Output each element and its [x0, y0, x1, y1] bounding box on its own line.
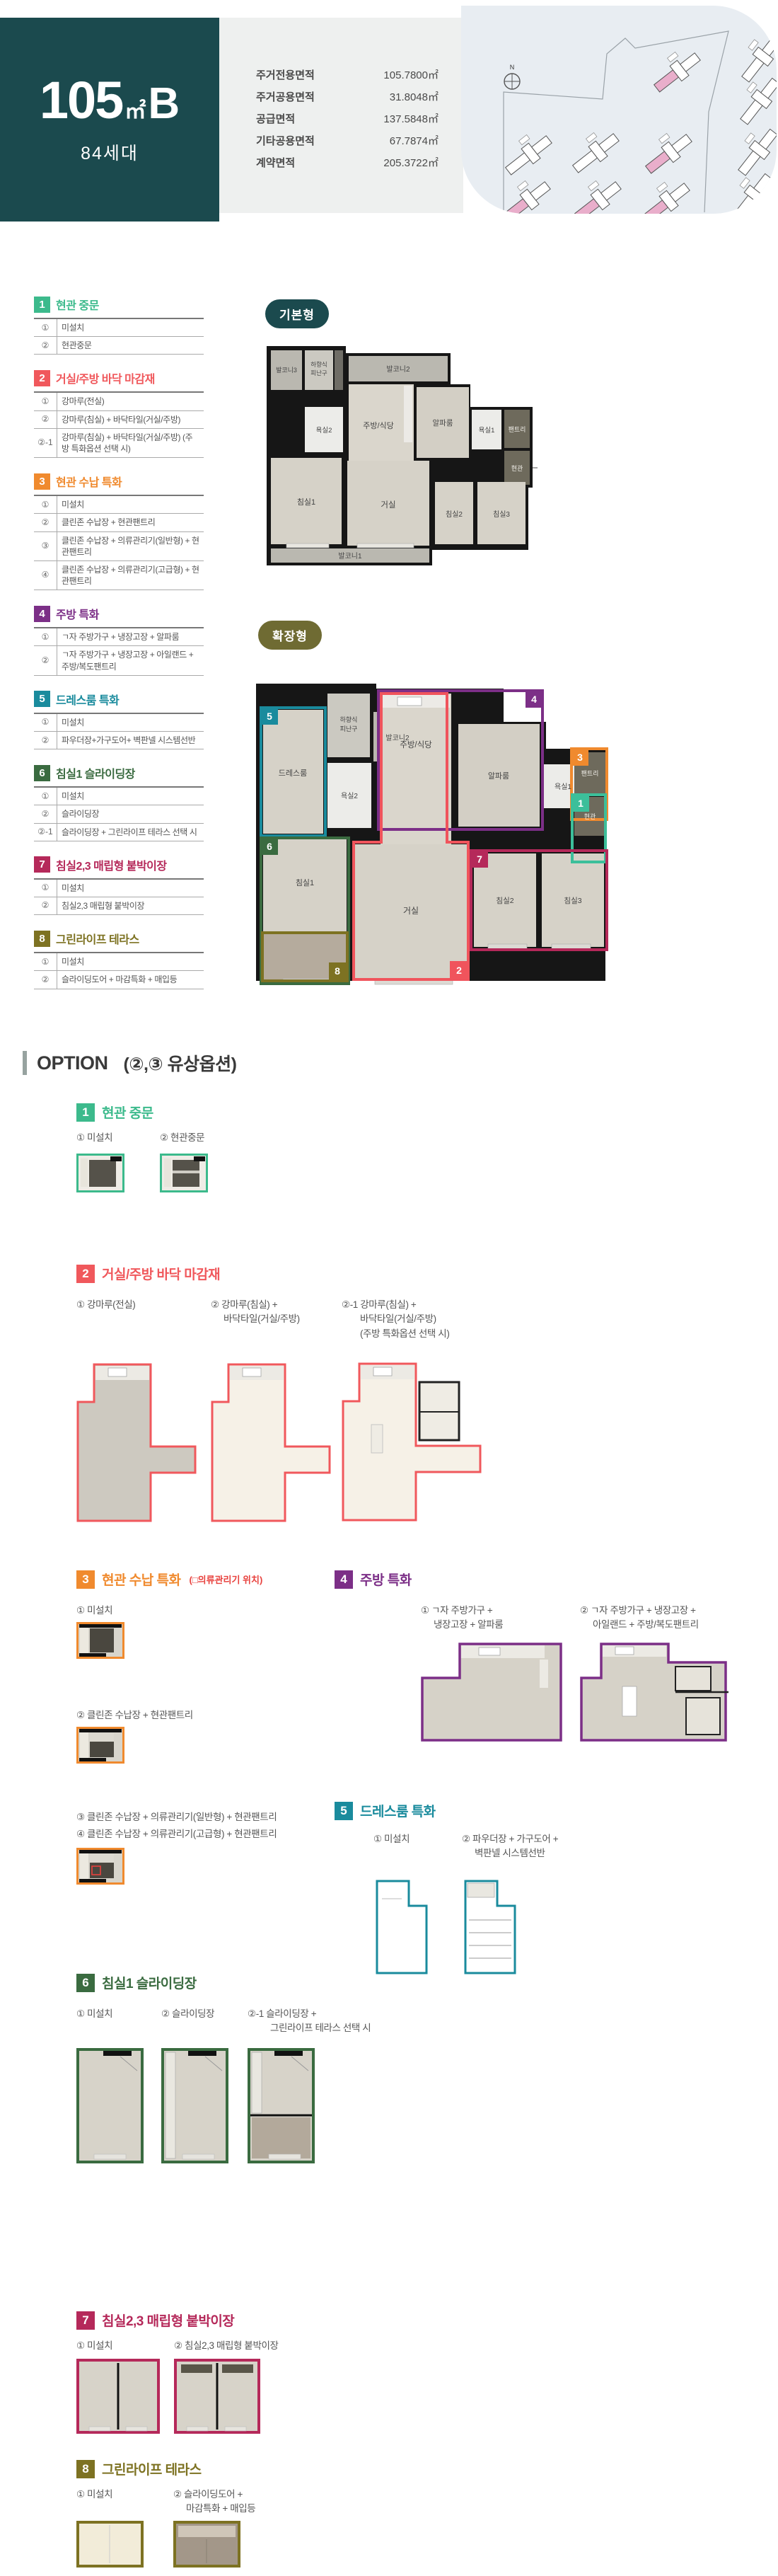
unit-size-number: 105	[40, 74, 122, 127]
option-row: ②파우더장+가구도어+ 벽판넬 시스템선반	[34, 732, 204, 749]
section-title: 그린라이프 테라스	[56, 930, 139, 947]
option-item: ① ㄱ자 주방가구 +냉장고장 + 알파룸	[421, 1604, 562, 1745]
section-title: 침실1 슬라이딩장	[102, 1973, 197, 1992]
option-text: ㄱ자 주방가구 + 냉장고장 + 알파룸	[57, 628, 204, 645]
option-text: 파우더장+가구도어+ 벽판넬 시스템선반	[57, 732, 204, 749]
option-item: ① 미설치	[76, 2339, 160, 2437]
option-mark: ①	[34, 953, 57, 970]
overlay-chip-6-label: 6	[267, 841, 272, 852]
option-text: ㄱ자 주방가구 + 냉장고장 + 아일랜드 + 주방/복도팬트리	[57, 646, 204, 674]
option-item: ① 미설치	[373, 1832, 430, 1980]
room-label-bed2: 침실2	[496, 897, 513, 905]
option-mark: ②	[34, 411, 57, 428]
sidebar-section-greenlife-terrace: 8 그린라이프 테라스 ①미설치 ②슬라이딩도어 + 마감특화 + 매입등	[34, 930, 204, 989]
option-item: ① 강마루(전실)	[76, 1298, 197, 1526]
option-row: ②슬라이딩장	[34, 805, 204, 823]
area-row: 기타공용면적 67.7874㎡	[256, 130, 439, 152]
section-title: 그린라이프 테라스	[102, 2459, 202, 2478]
heading-accent-bar	[23, 1051, 27, 1075]
room-label-kitchen: 주방/식당	[363, 421, 394, 430]
room-label-bath1: 욕실1	[555, 783, 571, 791]
extended-plan-badge: 확장형	[258, 621, 322, 650]
option-item: ② 강마루(침실) +바닥타일(거실/주방)	[211, 1298, 331, 1526]
site-map: N	[461, 6, 777, 214]
option-item: ① 미설치	[76, 1604, 124, 1662]
window-sill	[286, 544, 329, 548]
kitchen-sink	[397, 697, 422, 706]
unit-type-card: 105 ㎡ B 84세대	[0, 18, 219, 222]
option-row: ②ㄱ자 주방가구 + 냉장고장 + 아일랜드 + 주방/복도팬트리	[34, 646, 204, 675]
option-mark: ②	[34, 732, 57, 749]
sidebar-section-bed1-sliding: 6 침실1 슬라이딩장 ①미설치 ②슬라이딩장 ②-1슬라이딩장 + 그린라이프…	[34, 764, 204, 841]
room-label-bed3: 침실3	[493, 510, 510, 519]
option-block-1: 1 현관 중문 ① 미설치 ② 현관중문	[76, 1103, 359, 1196]
sidebar-section-entrance-door: 1 현관 중문 ①미설치 ②현관중문	[34, 296, 204, 355]
section-number-badge: 6	[76, 1974, 95, 1992]
option-row: ④클린존 수납장 + 의류관리기(고급형) + 현관팬트리	[34, 561, 204, 590]
building-icon	[728, 121, 777, 178]
option-block-8: 8 그린라이프 테라스 ① 미설치 ② 슬라이딩도어 +마감특화 + 매입등	[76, 2459, 373, 2571]
area-value: 205.3722㎡	[383, 152, 439, 174]
option-item: ③ 클린존 수납장 + 의류관리기(일반형) + 현관팬트리④ 클린존 수납장 …	[76, 1810, 277, 1888]
area-label: 주거공용면적	[256, 86, 315, 108]
building-icon	[732, 28, 777, 85]
floorplan-brochure-page: 105 ㎡ B 84세대 주거전용면적 105.7800㎡ 주거공용면적 31.…	[0, 0, 778, 2576]
option-text: 현관중문	[57, 337, 204, 354]
option-mark: ②	[34, 805, 57, 822]
section-note: (□의류관리기 위치)	[189, 1572, 262, 1586]
option-item: ② 파우더장 + 가구도어 +벽판넬 시스템선반	[462, 1832, 558, 1980]
room-label-bed2: 침실2	[446, 510, 463, 519]
option-text: 강마루(전실)	[57, 393, 204, 410]
area-value: 137.5848㎡	[383, 108, 439, 130]
option-diagram	[421, 1643, 562, 1742]
section-title: 거실/주방 바닥 마감재	[102, 1264, 220, 1283]
overlay-chip-5-label: 5	[267, 711, 272, 722]
option-row: ①미설치	[34, 714, 204, 732]
option-summary-sidebar: 1 현관 중문 ①미설치 ②현관중문 2 거실/주방 바닥 마감재 ①강마루(전…	[34, 296, 204, 1004]
kitchen-counter	[404, 386, 412, 442]
option-text: 슬라이딩도어 + 마감특화 + 매입등	[57, 971, 204, 988]
option-diagram	[76, 2048, 144, 2163]
option-thumb	[76, 1727, 124, 1764]
building-icon	[497, 172, 554, 214]
room-label-alpha: 알파룸	[433, 419, 453, 427]
option-diagram	[76, 1363, 197, 1522]
section-title: 침실1 슬라이딩장	[56, 764, 135, 781]
section-title: 현관 수납 특화	[102, 1570, 180, 1589]
north-compass-icon: N	[504, 64, 520, 89]
area-value: 105.7800㎡	[383, 64, 439, 86]
section-number-badge: 2	[76, 1265, 95, 1283]
option-block-2: 2 거실/주방 바닥 마감재 ① 강마루(전실) ② 강마루(침실) +바닥타일…	[76, 1264, 755, 1561]
option-item: ② 슬라이딩장	[161, 2007, 228, 2167]
section-title: 주방 특화	[56, 605, 99, 622]
section-number-badge: 7	[34, 856, 50, 873]
window-sill	[357, 544, 414, 548]
option-mark: ②	[34, 646, 57, 674]
option-diagram	[580, 1643, 728, 1742]
option-diagram	[174, 2359, 260, 2434]
room-label-entry: 현관	[511, 465, 523, 472]
option-section-heading: OPTION (②,③ 유상옵션)	[23, 1050, 236, 1076]
area-row: 주거공용면적 31.8048㎡	[256, 86, 439, 108]
option-mark: ①	[34, 714, 57, 731]
area-label: 공급면적	[256, 108, 295, 130]
section-number-badge: 5	[34, 691, 50, 707]
site-map-panel: N	[461, 6, 777, 214]
section-number-badge: 1	[34, 297, 50, 313]
section-number-badge: 5	[335, 1802, 353, 1820]
room-label-living: 거실	[403, 906, 419, 916]
option-mark: ②	[34, 971, 57, 988]
option-item: ②-1 슬라이딩장 +그린라이프 테라스 선택 시	[248, 2007, 371, 2167]
option-row: ①미설치	[34, 788, 204, 805]
option-row: ②클린존 수납장 + 현관팬트리	[34, 514, 204, 531]
option-mark: ②-1	[34, 429, 57, 457]
option-row: ②슬라이딩도어 + 마감특화 + 매입등	[34, 971, 204, 989]
option-row: ①미설치	[34, 953, 204, 971]
option-block-4: 4 주방 특화 ① ㄱ자 주방가구 +냉장고장 + 알파룸 ② ㄱ자 주방가구 …	[335, 1570, 745, 1782]
option-item: ② 클린존 수납장 + 현관팬트리	[76, 1708, 193, 1767]
option-thumb	[76, 1848, 124, 1885]
option-row: ②-1슬라이딩장 + 그린라이프 테라스 선택 시	[34, 824, 204, 841]
sidebar-section-entry-storage: 3 현관 수납 특화 ①미설치 ②클린존 수납장 + 현관팬트리 ③클린존 수납…	[34, 473, 204, 590]
area-info-panel: 주거전용면적 105.7800㎡ 주거공용면적 31.8048㎡ 공급면적 13…	[219, 18, 463, 213]
section-number-badge: 8	[34, 931, 50, 947]
option-mark: ②	[34, 337, 57, 354]
area-value: 67.7874㎡	[390, 130, 439, 152]
section-title: 현관 수납 특화	[56, 473, 122, 490]
area-row: 주거전용면적 105.7800㎡	[256, 64, 439, 86]
section-number-badge: 6	[34, 765, 50, 781]
overlay-chip-8-label: 8	[335, 965, 340, 977]
option-mark: ①	[34, 880, 57, 897]
option-text: 슬라이딩장 + 그린라이프 테라스 선택 시	[57, 824, 204, 841]
area-label: 계약면적	[256, 152, 295, 174]
option-text: 미설치	[57, 788, 204, 805]
building-icon	[498, 126, 555, 179]
room-label-bed1: 침실1	[297, 498, 315, 507]
area-row: 계약면적 205.3722㎡	[256, 152, 439, 174]
section-number-badge: 4	[335, 1570, 353, 1589]
section-title: 거실/주방 바닥 마감재	[56, 369, 155, 386]
sidebar-section-builtin-closet: 7 침실2,3 매립형 붙박이장 ①미설치 ②침실2,3 매립형 붙박이장	[34, 856, 204, 915]
room-label-balcony2: 발코니2	[386, 365, 410, 374]
option-mark: ①	[34, 628, 57, 645]
overlay-chip-2-label: 2	[456, 965, 462, 976]
option-row: ③클린존 수납장 + 의류관리기(일반형) + 현관팬트리	[34, 532, 204, 561]
building-icon	[565, 124, 622, 177]
option-thumb	[160, 1154, 208, 1192]
option-row: ①미설치	[34, 319, 204, 337]
overlay-chip-1-label: 1	[578, 798, 583, 809]
option-mark: ①	[34, 788, 57, 805]
option-row: ②강마루(침실) + 바닥타일(거실/주방)	[34, 411, 204, 429]
basic-floorplan: 발코니3 하향식 피난구 발코니2 주방/식당 욕실2 알파룸 욕실1 팬트리 …	[265, 342, 538, 568]
room-label-bath2: 욕실2	[316, 427, 332, 435]
option-mark: ③	[34, 532, 57, 560]
sidebar-section-floor-finish: 2 거실/주방 바닥 마감재 ①강마루(전실) ②강마루(침실) + 바닥타일(…	[34, 369, 204, 458]
area-label: 주거전용면적	[256, 64, 315, 86]
option-row: ①강마루(전실)	[34, 393, 204, 410]
option-mark: ④	[34, 561, 57, 590]
option-item: ② 슬라이딩도어 +마감특화 + 매입등	[173, 2488, 255, 2571]
option-block-7: 7 침실2,3 매립형 붙박이장 ① 미설치 ② 침실2,3 매립형 붙박이장	[76, 2311, 373, 2437]
area-value: 31.8048㎡	[390, 86, 439, 108]
option-item: ① 미설치	[76, 1131, 124, 1196]
option-diagram	[161, 2048, 228, 2163]
option-heading-text: OPTION	[37, 1052, 108, 1074]
room-label-dressroom: 드레스룸	[279, 769, 307, 778]
option-text: 침실2,3 매립형 붙박이장	[57, 897, 204, 914]
option-block-5: 5 드레스룸 특화 ① 미설치 ② 파우더장 + 가구도어 +벽판넬 시스템선반	[335, 1801, 617, 1999]
option-row: ①ㄱ자 주방가구 + 냉장고장 + 알파룸	[34, 628, 204, 646]
basic-plan-badge: 기본형	[265, 299, 329, 328]
building-icon	[636, 173, 693, 214]
extended-floorplan: 5 4 3 1 6 8 7 2 드레스룸 하향식 피난구 발코니2 주방/식당 …	[255, 678, 608, 989]
building-icon	[638, 125, 695, 178]
section-title: 주방 특화	[360, 1570, 412, 1589]
section-title: 침실2,3 매립형 붙박이장	[56, 856, 167, 873]
section-title: 드레스룸 특화	[56, 691, 119, 708]
option-diagram	[211, 1363, 331, 1522]
unit-type-letter: B	[148, 82, 180, 126]
section-title: 현관 중문	[102, 1103, 153, 1122]
option-diagram	[462, 1878, 518, 1977]
option-thumb	[76, 1622, 124, 1659]
room-label-pantry: 팬트리	[509, 426, 526, 433]
room-label-balcony3: 발코니3	[276, 367, 297, 374]
section-title: 침실2,3 매립형 붙박이장	[102, 2311, 234, 2330]
option-row: ②침실2,3 매립형 붙박이장	[34, 897, 204, 915]
room-label-pantry: 팬트리	[581, 770, 599, 777]
option-row: ①미설치	[34, 496, 204, 514]
option-item: ① 미설치	[76, 2488, 144, 2571]
option-block-3: 3 현관 수납 특화 (□의류관리기 위치) ① 미설치 ② 클린존 수납장 +…	[76, 1570, 373, 1895]
option-mark: ①	[34, 496, 57, 513]
option-text: 클린존 수납장 + 의류관리기(일반형) + 현관팬트리	[57, 532, 204, 560]
area-row: 공급면적 137.5848㎡	[256, 108, 439, 130]
option-diagram	[76, 2359, 160, 2434]
room-label-balcony1: 발코니1	[338, 552, 362, 560]
room-label-bed3: 침실3	[564, 897, 581, 905]
sidebar-section-dressroom: 5 드레스룸 특화 ①미설치 ②파우더장+가구도어+ 벽판넬 시스템선반	[34, 691, 204, 749]
room-shaft	[335, 350, 343, 390]
option-text: 미설치	[57, 880, 204, 897]
option-text: 강마루(침실) + 바닥타일(거실/주방)	[57, 411, 204, 428]
option-row: ②-1강마루(침실) + 바닥타일(거실/주방) (주방 특화옵션 선택 시)	[34, 429, 204, 458]
room-label-bath2: 욕실2	[341, 792, 358, 800]
room-label-alpha: 알파룸	[488, 771, 509, 781]
room-label-entry: 현관	[584, 813, 596, 820]
option-item: ① 미설치	[76, 2007, 144, 2167]
section-number-badge: 1	[76, 1103, 95, 1122]
section-number-badge: 2	[34, 370, 50, 386]
option-mark: ②	[34, 897, 57, 914]
section-title: 현관 중문	[56, 296, 99, 313]
section-number-badge: 3	[34, 473, 50, 490]
option-text: 미설치	[57, 319, 204, 336]
option-block-6: 6 침실1 슬라이딩장 ① 미설치 ② 슬라이딩장	[76, 1973, 416, 2207]
option-row: ②현관중문	[34, 337, 204, 355]
option-diagram	[373, 1878, 430, 1977]
section-number-badge: 7	[76, 2311, 95, 2330]
section-number-badge: 8	[76, 2460, 95, 2478]
option-text: 강마루(침실) + 바닥타일(거실/주방) (주방 특화옵션 선택 시)	[57, 429, 204, 457]
room-label-escape1: 하향식	[310, 361, 327, 368]
unit-size-unit: ㎡	[124, 101, 146, 122]
building-icon	[646, 43, 704, 96]
room-label-kitchen: 주방/식당	[400, 740, 432, 749]
section-number-badge: 3	[76, 1570, 95, 1589]
room-label-escape2: 피난구	[340, 725, 358, 732]
option-text: 미설치	[57, 714, 204, 731]
building-icon	[567, 172, 625, 214]
overlay-chip-3-label: 3	[577, 752, 583, 763]
option-item: ② 현관중문	[160, 1131, 208, 1196]
option-mark: ②	[34, 514, 57, 531]
option-row: ①미설치	[34, 880, 204, 897]
unit-type-title: 105 ㎡ B	[40, 74, 180, 127]
option-item: ② ㄱ자 주방가구 + 냉장고장 +아일랜드 + 주방/복도팬트리	[580, 1604, 728, 1745]
households-count: 84세대	[81, 139, 139, 165]
building-icon	[724, 166, 777, 214]
option-item-label: ② 현관중문	[160, 1131, 208, 1145]
option-item: ② 침실2,3 매립형 붙박이장	[174, 2339, 279, 2437]
option-text: 미설치	[57, 953, 204, 970]
section-title: 드레스룸 특화	[360, 1801, 436, 1820]
area-label: 기타공용면적	[256, 130, 315, 152]
option-diagram	[76, 2521, 144, 2568]
area-table: 주거전용면적 105.7800㎡ 주거공용면적 31.8048㎡ 공급면적 13…	[256, 64, 439, 174]
option-mark: ①	[34, 393, 57, 410]
sidebar-section-kitchen: 4 주방 특화 ①ㄱ자 주방가구 + 냉장고장 + 알파룸 ②ㄱ자 주방가구 +…	[34, 605, 204, 676]
option-mark: ②-1	[34, 824, 57, 841]
option-text: 미설치	[57, 496, 204, 513]
option-thumb	[76, 1154, 124, 1192]
option-diagram	[342, 1362, 483, 1522]
option-item: ②-1 강마루(침실) +바닥타일(거실/주방)(주방 특화옵션 선택 시)	[342, 1298, 483, 1525]
option-text: 클린존 수납장 + 의류관리기(고급형) + 현관팬트리	[57, 561, 204, 590]
overlay-chip-4-label: 4	[531, 694, 537, 705]
section-number-badge: 4	[34, 606, 50, 622]
room-label-bath1: 욕실1	[479, 427, 495, 435]
compass-north-label: N	[510, 64, 515, 71]
room-label-escape2: 피난구	[310, 369, 327, 376]
option-diagram	[173, 2521, 240, 2568]
option-heading-note: (②,③ 유상옵션)	[124, 1050, 237, 1076]
option-diagram	[248, 2048, 315, 2163]
overlay-chip-7-label: 7	[477, 853, 482, 865]
building-icon	[731, 70, 777, 127]
room-label-escape1: 하향식	[340, 715, 358, 723]
room-label-living: 거실	[381, 500, 395, 510]
option-item-label: ① 미설치	[76, 1131, 124, 1145]
option-text: 클린존 수납장 + 현관팬트리	[57, 514, 204, 531]
option-text: 슬라이딩장	[57, 805, 204, 822]
room-label-bed1: 침실1	[296, 878, 314, 887]
option-mark: ①	[34, 319, 57, 336]
